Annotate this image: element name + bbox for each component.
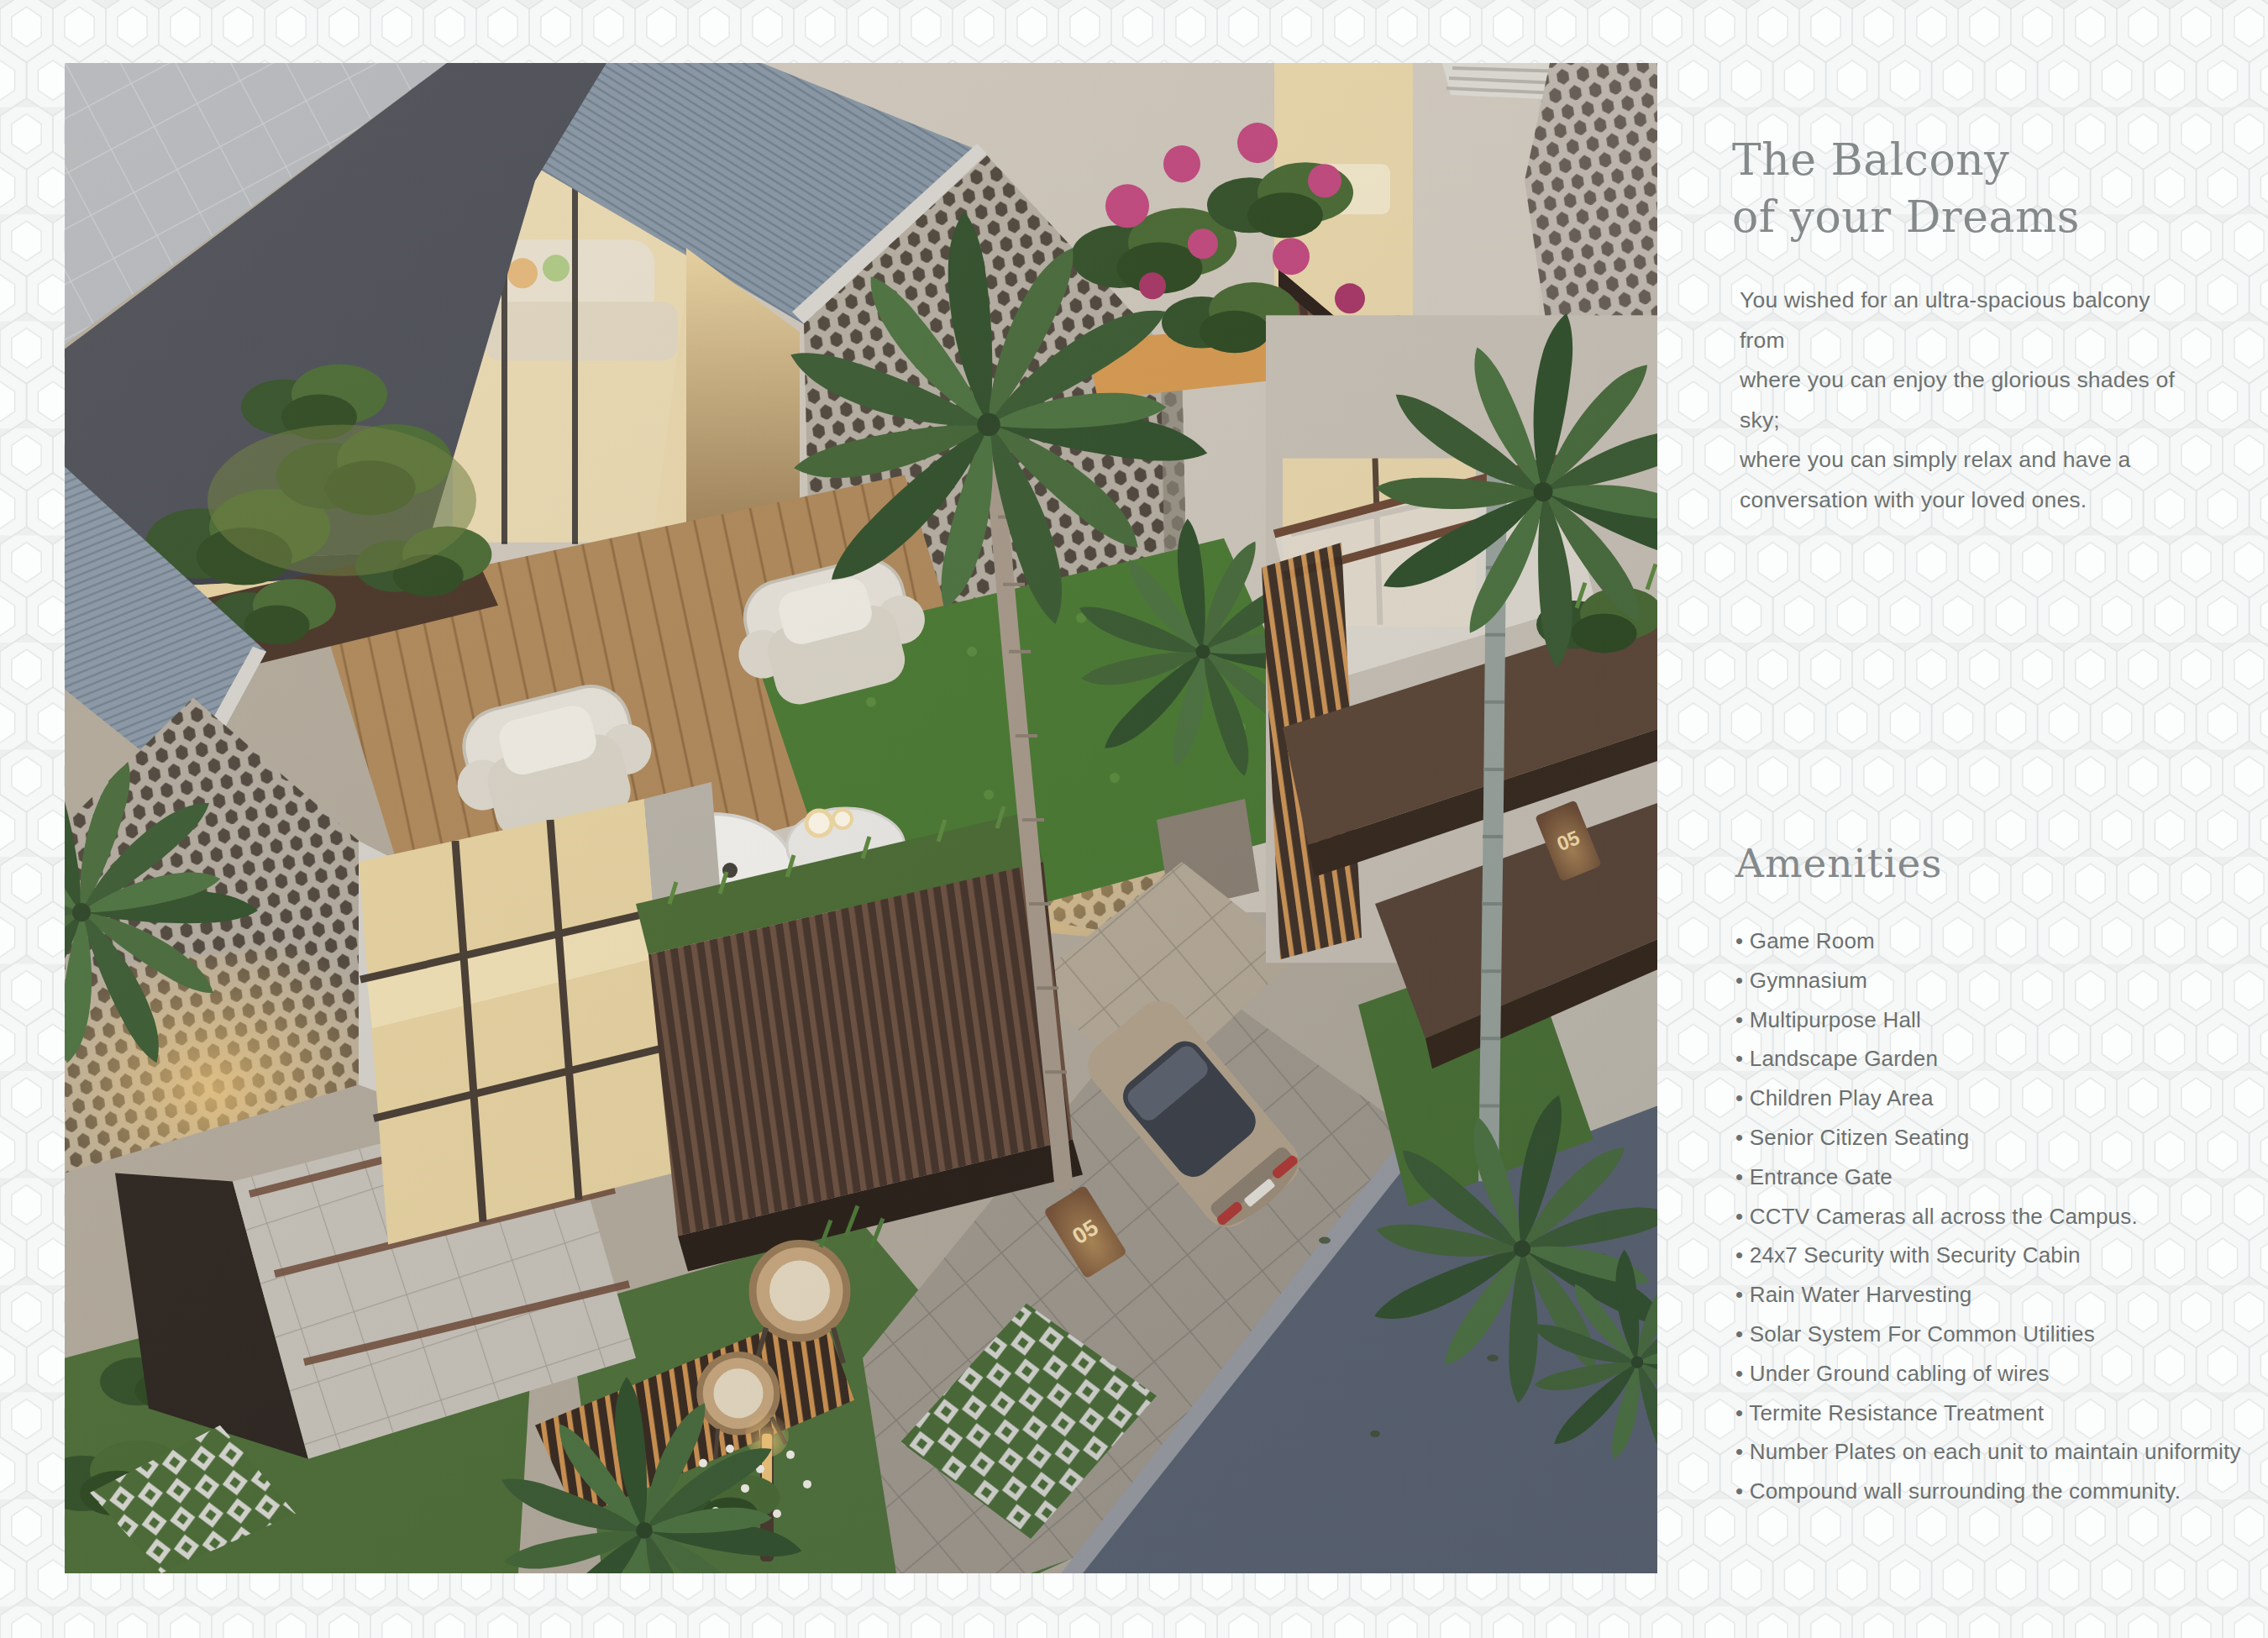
property-render-image: 05 05 — [65, 63, 1657, 1573]
amenity-item: • Game Room — [1735, 921, 2241, 961]
amenity-item: • Landscape Garden — [1735, 1039, 2241, 1079]
page-title: The Balcony of your Dreams — [1732, 131, 2080, 245]
amenity-item: • Multipurpose Hall — [1735, 1000, 2241, 1040]
amenity-item: • Solar System For Common Utilities — [1735, 1315, 2241, 1354]
amenities-heading: Amenities — [1735, 840, 1942, 887]
amenity-item: • Children Play Area — [1735, 1079, 2241, 1118]
amenity-item: • Entrance Gate — [1735, 1158, 2241, 1197]
amenity-item: • Senior Citizen Seating — [1735, 1118, 2241, 1158]
intro-paragraph: You wished for an ultra-spacious balcony… — [1740, 281, 2193, 521]
amenity-item: • 24x7 Security with Security Cabin — [1735, 1236, 2241, 1275]
amenity-item: • Under Ground cabling of wires — [1735, 1354, 2241, 1394]
amenity-item: • Rain Water Harvesting — [1735, 1275, 2241, 1315]
render-dusk-overlay — [65, 63, 1657, 1573]
amenity-item: • Number Plates on each unit to maintain… — [1735, 1432, 2241, 1472]
amenity-item: • Termite Resistance Treatment — [1735, 1394, 2241, 1433]
amenity-item: • Gymnasium — [1735, 961, 2241, 1000]
brochure-page: 05 05 — [0, 0, 2268, 1638]
amenities-list: • Game Room• Gymnasium• Multipurpose Hal… — [1735, 921, 2241, 1511]
amenity-item: • Compound wall surrounding the communit… — [1735, 1472, 2241, 1511]
amenity-item: • CCTV Cameras all across the Campus. — [1735, 1197, 2241, 1236]
